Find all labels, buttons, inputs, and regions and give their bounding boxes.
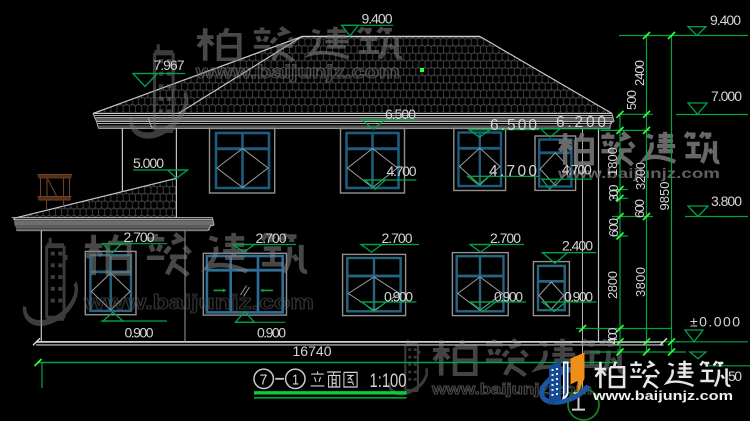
svg-text:0.900: 0.900 (564, 288, 593, 304)
svg-text:7.000: 7.000 (711, 88, 742, 104)
svg-text:0.900: 0.900 (384, 288, 413, 304)
svg-text:2.400: 2.400 (562, 238, 593, 254)
svg-text:9.400: 9.400 (710, 12, 741, 28)
svg-text:www.baijunjz.com: www.baijunjz.com (592, 389, 733, 403)
svg-text:3800: 3800 (633, 267, 648, 297)
svg-text:9850: 9850 (657, 182, 672, 211)
svg-text:2.700: 2.700 (382, 230, 413, 246)
svg-text:www.baijunjz.com: www.baijunjz.com (195, 62, 400, 82)
svg-text:1800: 1800 (605, 147, 620, 176)
svg-text:0.900: 0.900 (257, 325, 286, 341)
svg-text:600: 600 (632, 199, 647, 218)
svg-text:16740: 16740 (293, 343, 332, 359)
svg-text:300: 300 (606, 185, 621, 202)
svg-text:4.700: 4.700 (387, 163, 417, 179)
svg-text:2800: 2800 (605, 271, 620, 299)
svg-text:3200: 3200 (633, 162, 648, 190)
svg-text:0.900: 0.900 (125, 324, 154, 340)
svg-text:2.700: 2.700 (256, 230, 287, 246)
svg-text:400: 400 (605, 328, 620, 345)
svg-text:9.400: 9.400 (362, 11, 393, 27)
svg-text:1:100: 1:100 (370, 371, 407, 392)
svg-text:3.800: 3.800 (711, 193, 742, 209)
svg-text:50: 50 (728, 368, 742, 384)
svg-text:6.200: 6.200 (556, 114, 606, 131)
svg-text:2400: 2400 (632, 60, 647, 86)
svg-text:6.500: 6.500 (490, 117, 537, 134)
svg-text:7.967: 7.967 (154, 57, 185, 73)
svg-text:5.000: 5.000 (133, 155, 164, 171)
svg-text:600: 600 (606, 218, 621, 237)
svg-text:4.700: 4.700 (489, 163, 537, 180)
svg-text:4.700: 4.700 (562, 162, 592, 178)
svg-text:0.900: 0.900 (494, 288, 523, 304)
svg-text:2.700: 2.700 (490, 230, 521, 246)
svg-text:www.baijunjz.com: www.baijunjz.com (83, 292, 314, 314)
svg-text:2.700: 2.700 (124, 229, 155, 245)
svg-text:7: 7 (260, 372, 268, 388)
svg-text:1: 1 (292, 372, 299, 388)
svg-text:±0.000: ±0.000 (690, 314, 740, 330)
svg-text:6.500: 6.500 (385, 106, 416, 122)
svg-text:500: 500 (624, 90, 639, 110)
